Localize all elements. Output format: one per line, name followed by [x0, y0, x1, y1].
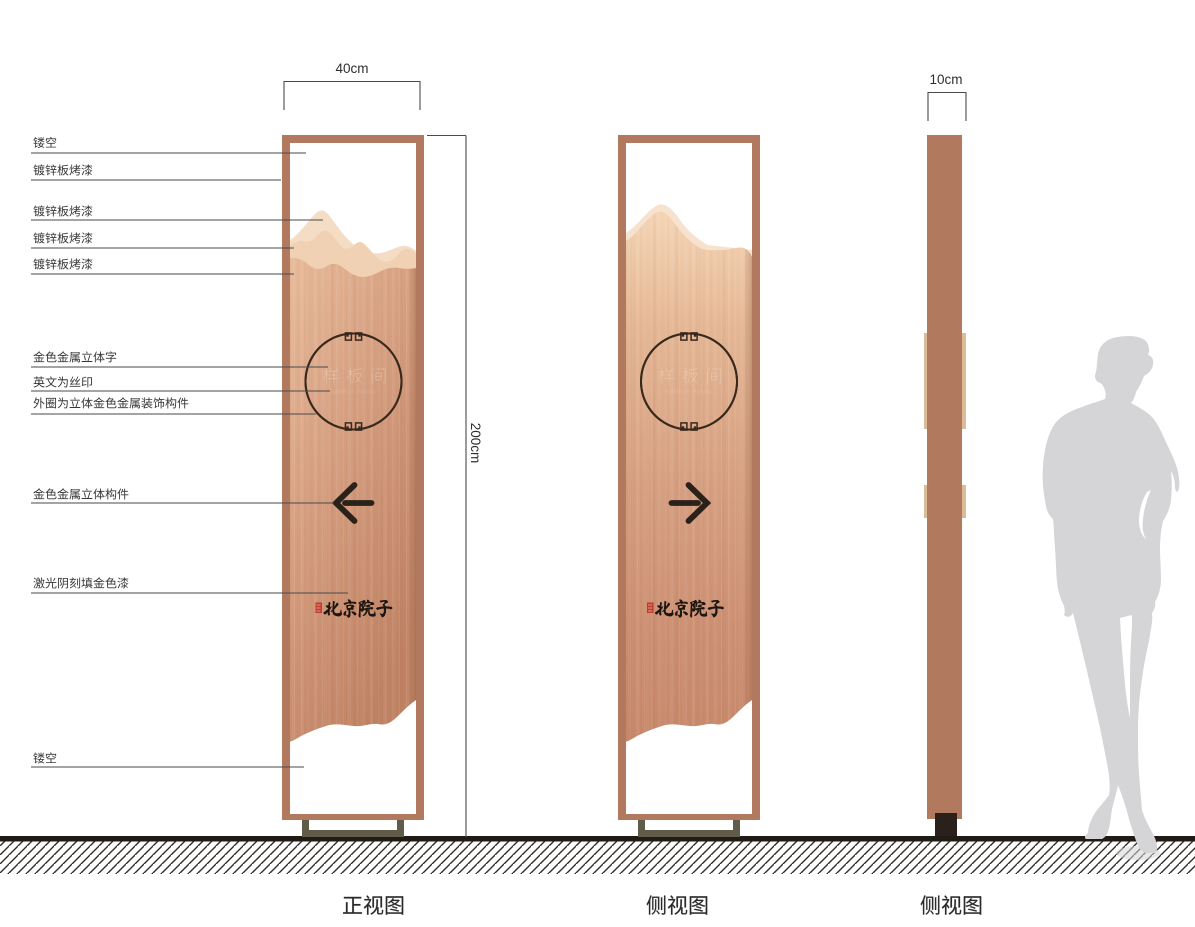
svg-text:40cm: 40cm: [335, 61, 368, 76]
svg-text:200cm: 200cm: [468, 423, 483, 464]
svg-text:10cm: 10cm: [929, 72, 962, 87]
svg-text:SAMPLE ROOM: SAMPLE ROOM: [330, 390, 375, 396]
svg-text:SAMPLE ROOM: SAMPLE ROOM: [666, 390, 711, 396]
